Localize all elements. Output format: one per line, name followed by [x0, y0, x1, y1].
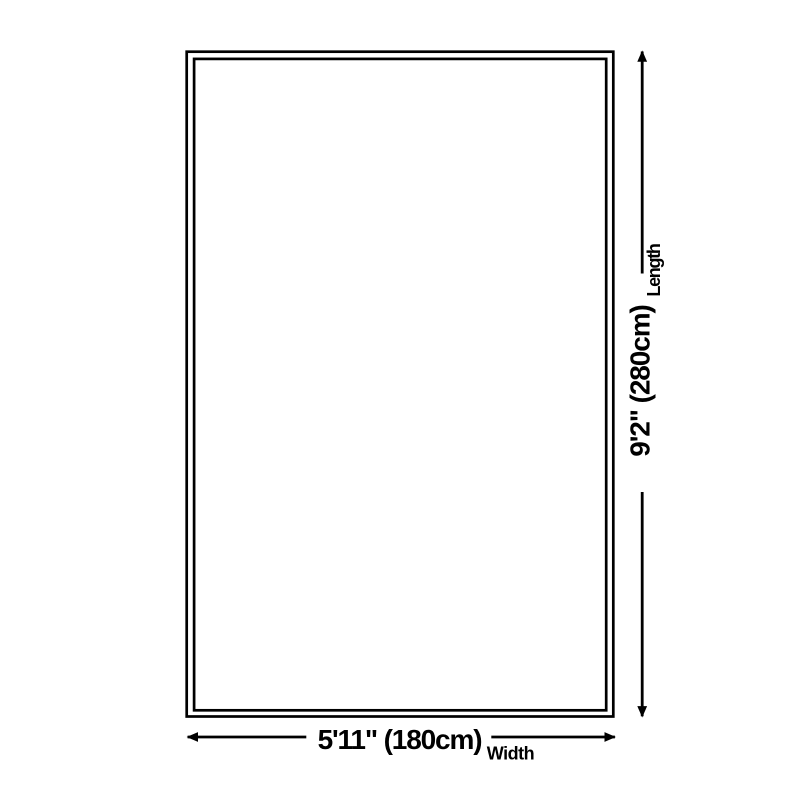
- svg-text:5'11" (180cm): 5'11" (180cm): [318, 724, 482, 755]
- svg-text:9'2" (280cm): 9'2" (280cm): [624, 305, 655, 457]
- svg-text:Width: Width: [487, 744, 534, 764]
- svg-text:Length: Length: [644, 244, 664, 296]
